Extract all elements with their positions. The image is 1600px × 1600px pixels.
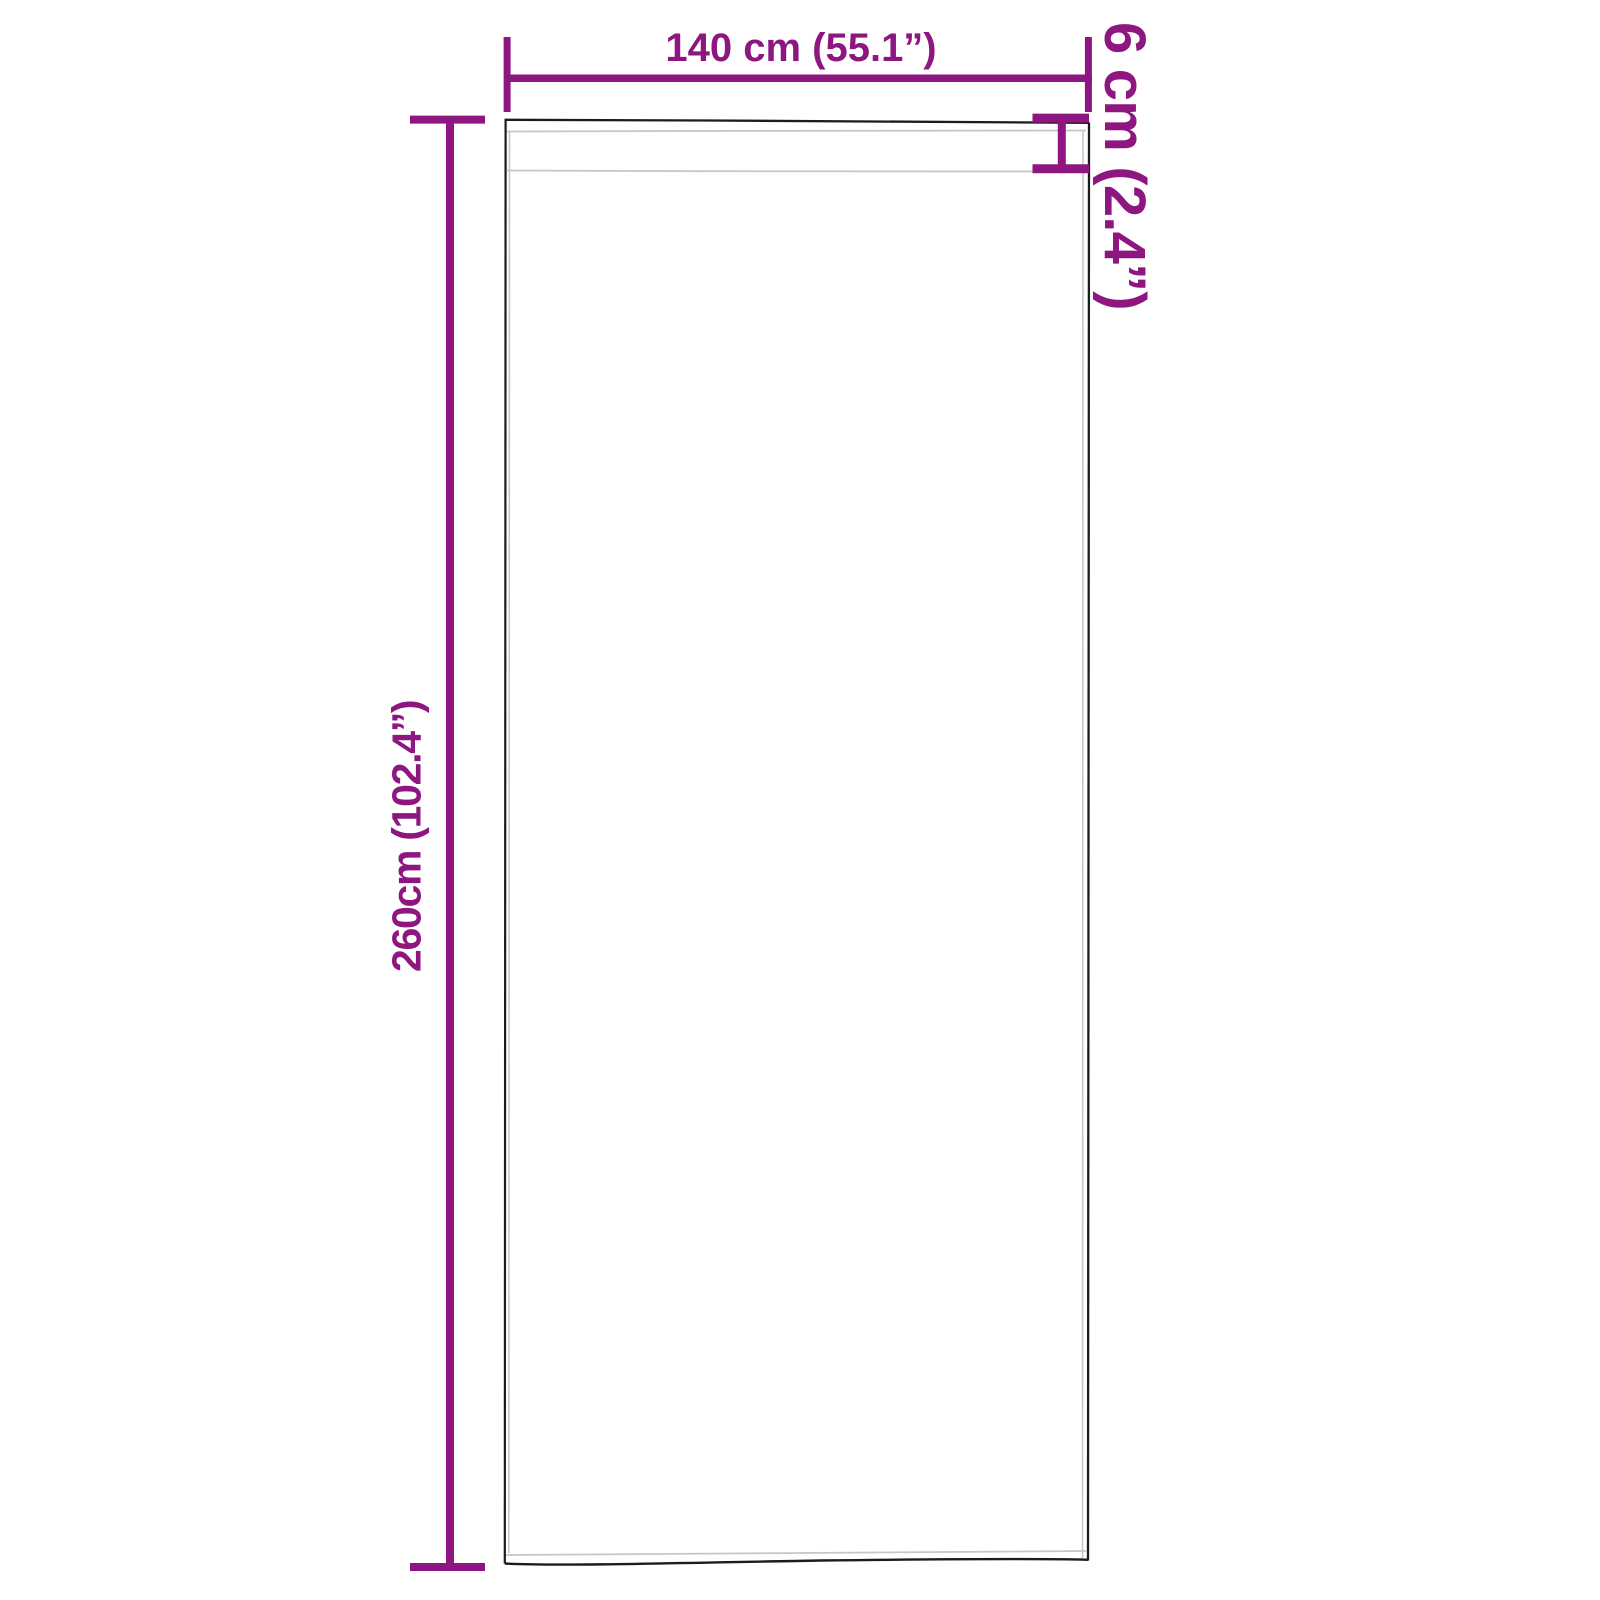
svg-text:6 cm (2.4”): 6 cm (2.4”) <box>1092 22 1157 310</box>
svg-text:140 cm (55.1”): 140 cm (55.1”) <box>665 26 936 70</box>
svg-text:260cm (102.4”): 260cm (102.4”) <box>384 701 430 972</box>
